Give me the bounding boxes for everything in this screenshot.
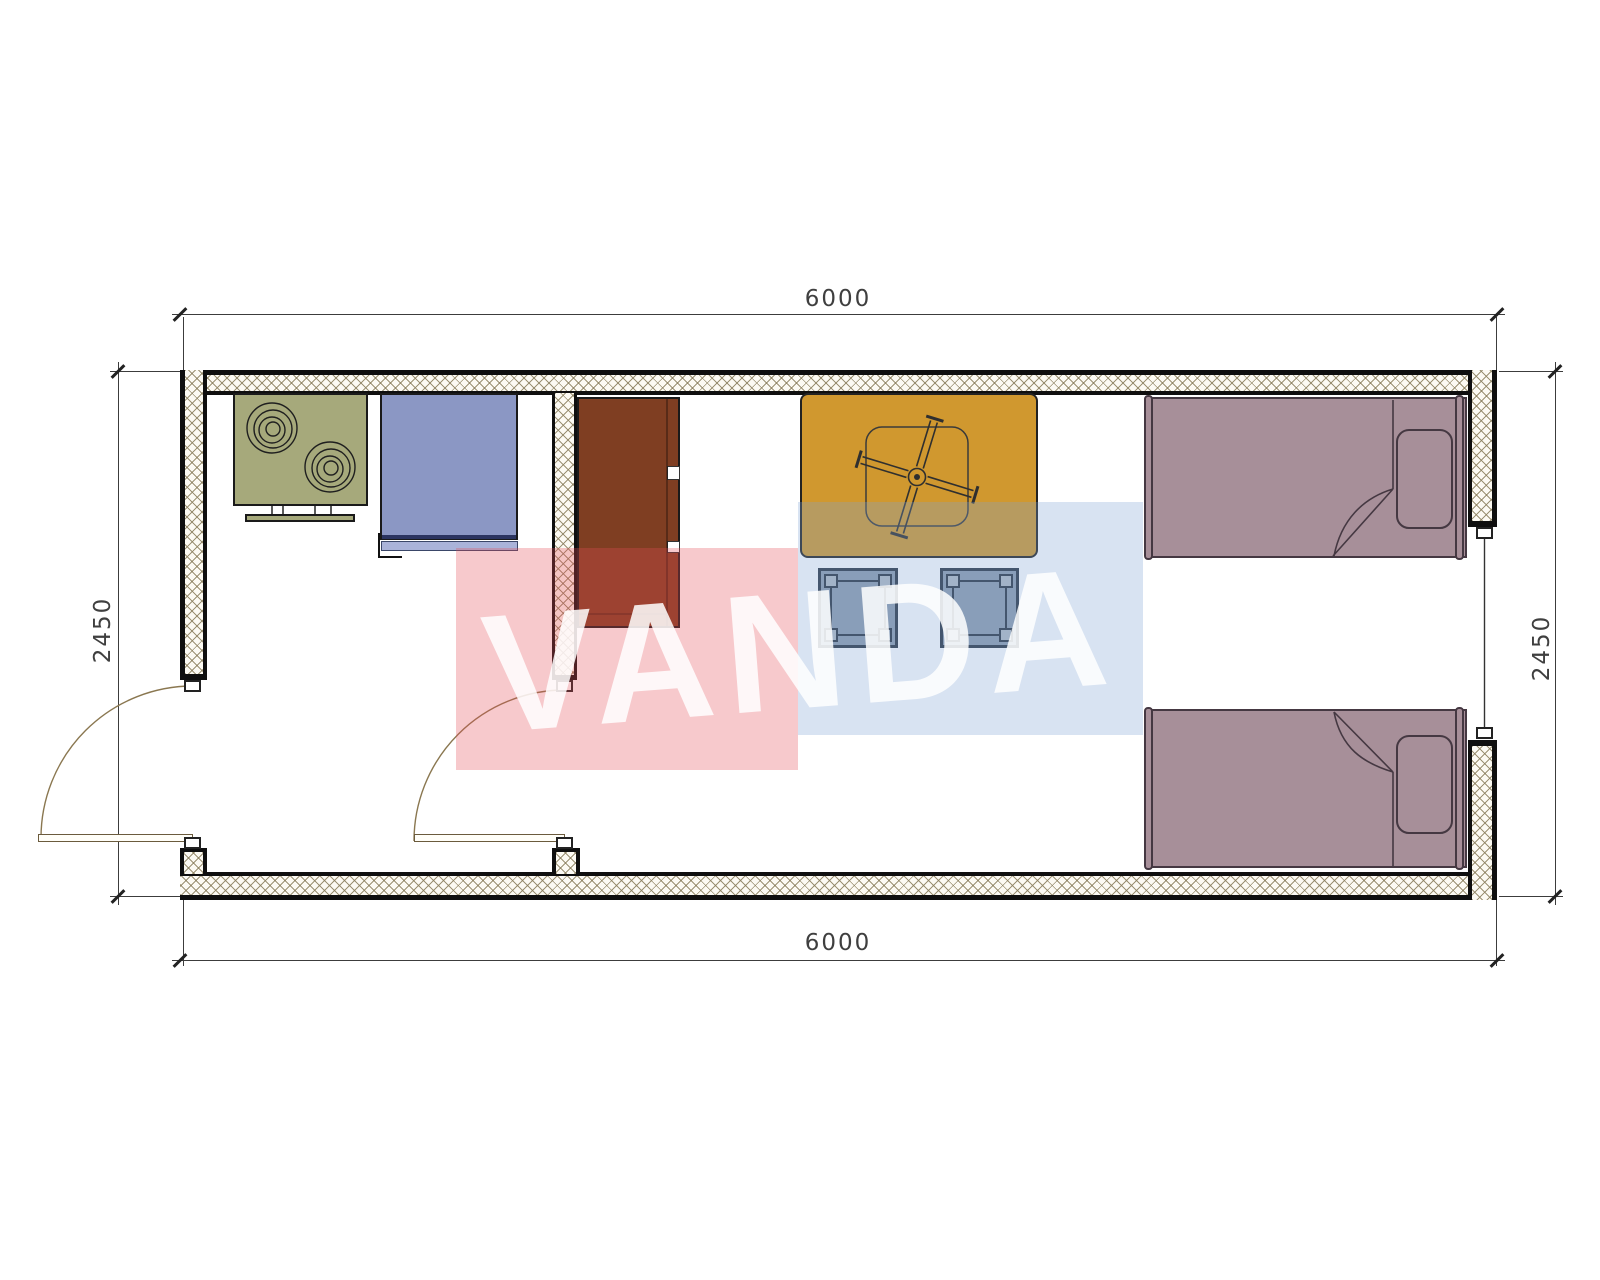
exterior-wall-bottom [180, 872, 1497, 900]
stove-handle-connectors [272, 506, 331, 514]
appliance-tray [381, 541, 518, 551]
bed-footboard [1455, 395, 1464, 560]
dimension-line-left [118, 362, 119, 905]
door-jamb-entry [180, 848, 207, 874]
stool-foot [946, 628, 960, 642]
bed-headboard [1144, 395, 1153, 560]
stool-foot [999, 574, 1013, 588]
door-strike-stub [556, 680, 573, 692]
dimension-line-bottom [172, 960, 1505, 961]
extension-line [1496, 317, 1497, 370]
appliance-door-line [382, 535, 516, 539]
interior-door-leaf [414, 834, 565, 842]
exterior-wall-right-lower [1468, 740, 1497, 900]
stool-foot [878, 574, 892, 588]
bed-footboard [1455, 707, 1464, 870]
exterior-wall-right-upper [1468, 370, 1497, 527]
exterior-wall-left [180, 370, 207, 680]
exterior-wall-top [180, 370, 1497, 395]
stool [940, 568, 1019, 648]
cabinet-handle-notch [667, 541, 680, 553]
dimension-label-top: 6000 [763, 286, 913, 312]
extension-line [1496, 900, 1497, 966]
watermark-text: VANDA [434, 527, 1167, 773]
stool-foot [824, 628, 838, 642]
stool [818, 568, 898, 648]
dining-table [800, 393, 1038, 558]
window-jamb-stub [1476, 527, 1493, 539]
extension-line [110, 896, 180, 897]
wardrobe-cabinet [577, 397, 680, 628]
bed-pillow [1396, 735, 1453, 834]
cabinet-handle-notch [667, 466, 680, 480]
kitchen-appliance [380, 393, 518, 540]
extension-line [110, 371, 180, 372]
stove-handle [245, 514, 355, 522]
entry-door-leaf [38, 834, 193, 842]
dimension-line-top [172, 314, 1505, 315]
extension-line [183, 317, 184, 370]
dimension-label-right: 2450 [1529, 573, 1555, 723]
door-hinge-stub [556, 837, 573, 849]
dimension-label-bottom: 6000 [763, 930, 913, 956]
interior-partition-wall [552, 393, 577, 680]
door-hinge-stub [184, 837, 201, 849]
window-jamb-stub [1476, 727, 1493, 739]
cooktop-stove [233, 393, 368, 506]
stool-foot [946, 574, 960, 588]
stool-foot [824, 574, 838, 588]
floor-plan-canvas: 6000 6000 2450 2450 [0, 0, 1600, 1280]
door-jamb-interior [552, 848, 580, 874]
stool-foot [878, 628, 892, 642]
interior-door-swing-arc-icon [414, 690, 565, 841]
plan-lineart-overlay [0, 0, 1600, 1280]
door-strike-stub [184, 680, 201, 692]
dimension-line-right [1555, 362, 1556, 905]
stool-foot [999, 628, 1013, 642]
entry-door-swing-arc-icon [41, 686, 193, 838]
dimension-label-left: 2450 [90, 555, 116, 705]
bed-pillow [1396, 429, 1453, 529]
bed-headboard [1144, 707, 1153, 870]
